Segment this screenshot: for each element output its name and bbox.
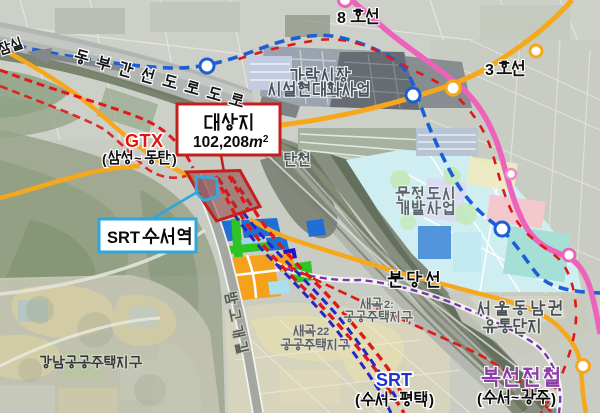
svg-text:22: 22 <box>317 326 329 338</box>
svg-text:3: 3 <box>485 62 494 79</box>
svg-text:~: ~ <box>389 391 397 407</box>
svg-text:GTX: GTX <box>125 131 164 151</box>
svg-text:(: ( <box>355 392 360 409</box>
svg-text:8: 8 <box>337 10 346 27</box>
svg-text:): ) <box>551 391 556 408</box>
svg-text:~: ~ <box>511 389 519 405</box>
svg-text:~: ~ <box>134 151 142 166</box>
svg-text:): ) <box>172 151 177 167</box>
svg-text:): ) <box>429 392 434 409</box>
svg-text:102,208m2: 102,208m2 <box>193 134 269 151</box>
svg-text:SRT: SRT <box>107 229 140 247</box>
svg-text:(: ( <box>102 151 107 167</box>
svg-text:(: ( <box>477 391 482 408</box>
svg-text:SRT: SRT <box>376 370 412 390</box>
